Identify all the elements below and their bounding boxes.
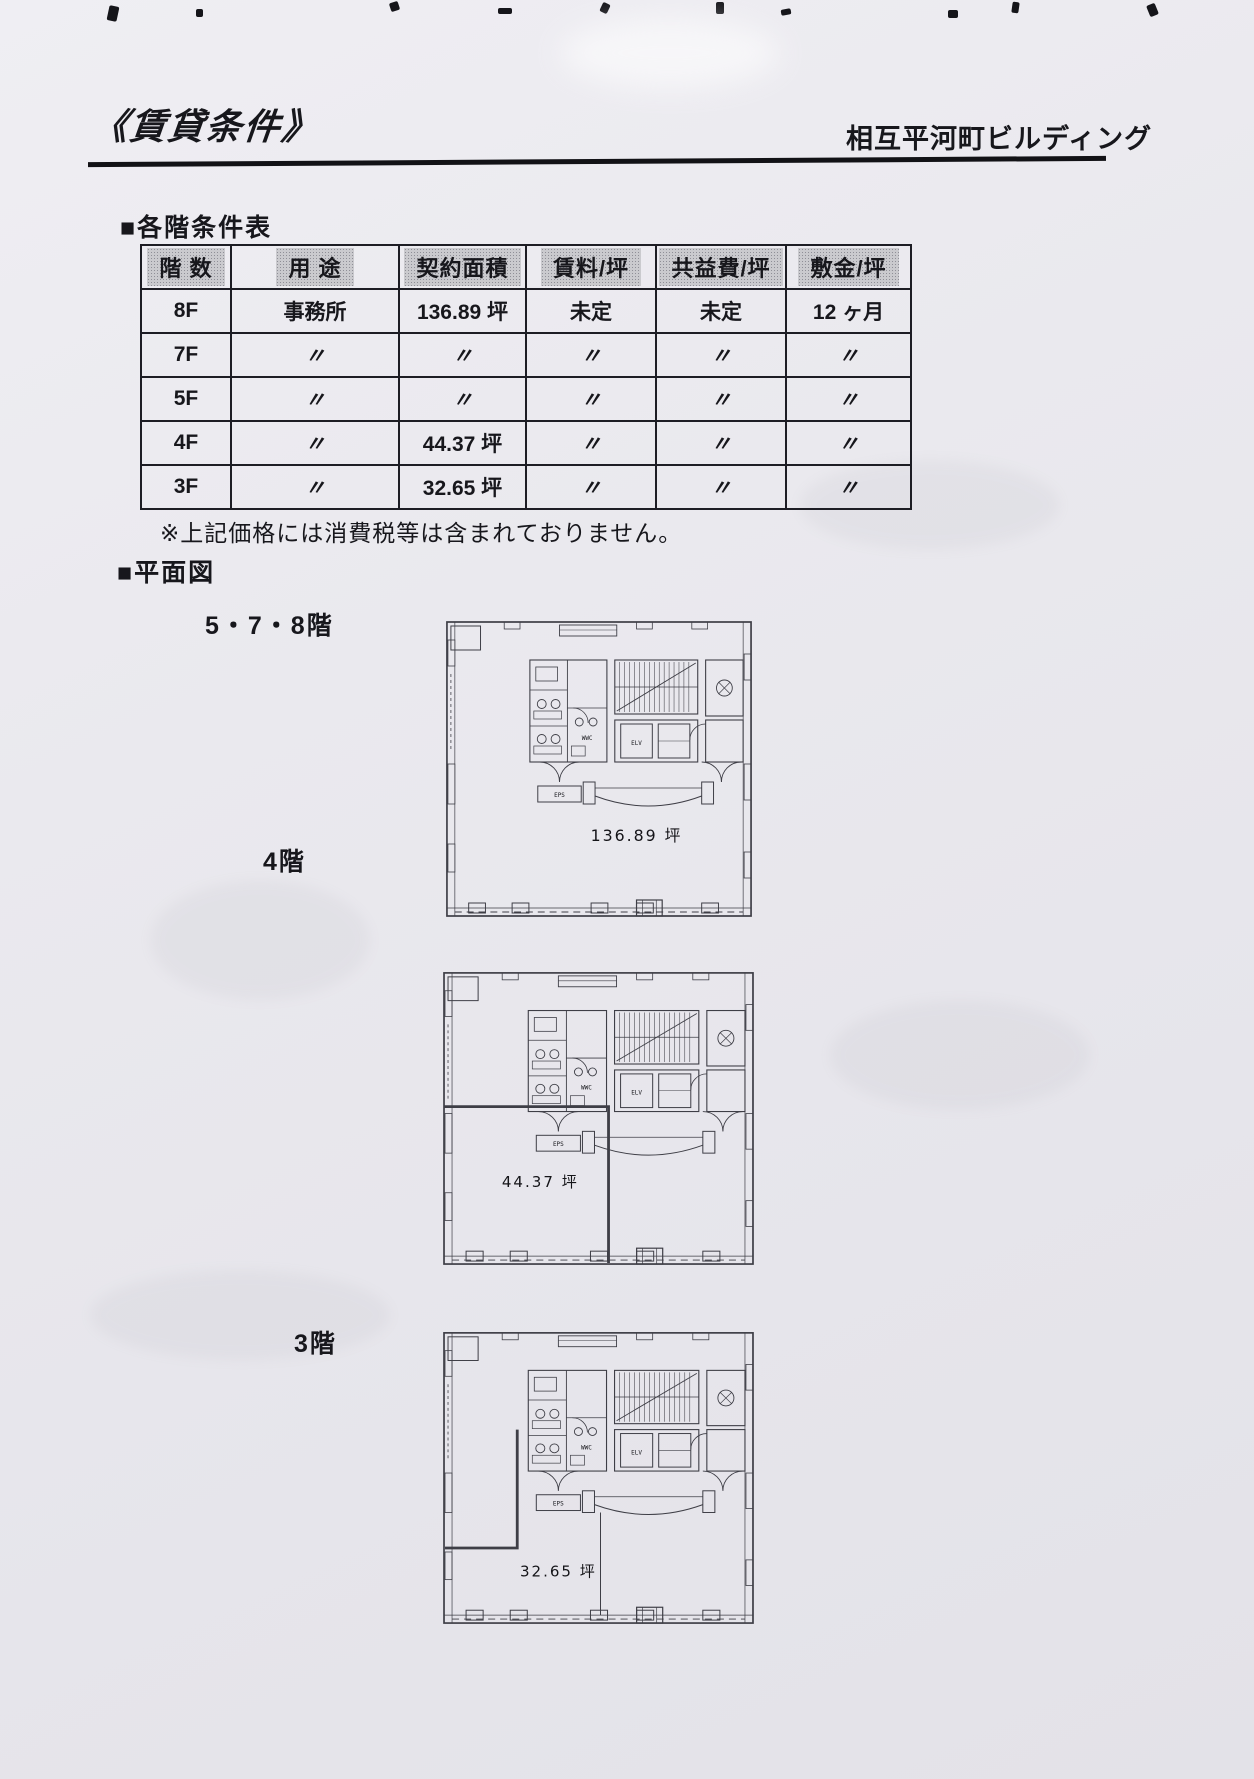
svg-text:ELV: ELV bbox=[631, 1449, 642, 1456]
conditions-table: 階 数 用 途 契約面積 賃料/坪 共益費/坪 敷金/坪 8F 事務所 136.… bbox=[140, 244, 912, 510]
table-header-row: 階 数 用 途 契約面積 賃料/坪 共益費/坪 敷金/坪 bbox=[141, 245, 911, 289]
cell-rent: 〃 bbox=[526, 465, 656, 509]
cell-floor: 7F bbox=[141, 333, 231, 377]
cell-area: 136.89 坪 bbox=[399, 289, 526, 333]
cell-floor: 8F bbox=[141, 289, 231, 333]
cell-use: 〃 bbox=[231, 377, 399, 421]
svg-text:EPS: EPS bbox=[553, 1501, 564, 1508]
cell-floor: 5F bbox=[141, 377, 231, 421]
conditions-section-heading: ■各階条件表 bbox=[120, 208, 272, 244]
scan-speck bbox=[107, 5, 120, 22]
table-row-3f: 3F 〃 32.65 坪 〃 〃 〃 bbox=[141, 465, 911, 509]
svg-text:EPS: EPS bbox=[553, 1141, 564, 1148]
cell-deposit: 〃 bbox=[786, 333, 911, 377]
cell-common-fee: 〃 bbox=[656, 465, 786, 509]
svg-text:32.65 坪: 32.65 坪 bbox=[520, 1563, 597, 1581]
cell-floor: 3F bbox=[141, 465, 231, 509]
cell-rent: 〃 bbox=[526, 377, 656, 421]
cell-rent: 〃 bbox=[526, 421, 656, 465]
tax-note: ※上記価格には消費税等は含まれておりません。 bbox=[160, 514, 682, 548]
cell-common-fee: 〃 bbox=[656, 421, 786, 465]
col-header-area: 契約面積 bbox=[399, 245, 526, 289]
col-header-rent: 賃料/坪 bbox=[526, 245, 656, 289]
scan-speck bbox=[389, 1, 400, 12]
scan-speck bbox=[599, 2, 610, 14]
col-header-label: 階 数 bbox=[147, 248, 224, 286]
cell-deposit: 〃 bbox=[786, 377, 911, 421]
cell-use: 〃 bbox=[231, 465, 399, 509]
scan-speck bbox=[781, 8, 792, 16]
cell-deposit: 12 ヶ月 bbox=[786, 289, 911, 333]
col-header-common-fee: 共益費/坪 bbox=[656, 245, 786, 289]
scanned-rental-conditions-page: 《賃貸条件》 相互平河町ビルディング ■各階条件表 階 数 用 途 契約面積 賃… bbox=[0, 0, 1254, 1779]
cell-area: 〃 bbox=[399, 333, 526, 377]
scan-speck bbox=[948, 10, 958, 18]
svg-text:44.37 坪: 44.37 坪 bbox=[502, 1173, 579, 1191]
header-rule bbox=[88, 156, 1106, 167]
svg-text:WWC: WWC bbox=[581, 1085, 592, 1092]
floor-plan-4F: WWCELVEPS44.37 坪 bbox=[440, 963, 757, 1268]
cell-use: 事務所 bbox=[231, 289, 399, 333]
plan-label-3F: 3階 bbox=[294, 1324, 337, 1360]
cell-area: 〃 bbox=[399, 377, 526, 421]
table-row-7f: 7F 〃 〃 〃 〃 〃 bbox=[141, 333, 911, 377]
col-header-deposit: 敷金/坪 bbox=[786, 245, 911, 289]
plan-label-5-7-8F: 5・7・8階 bbox=[205, 606, 334, 642]
col-header-label: 賃料/坪 bbox=[541, 248, 641, 286]
cell-area: 44.37 坪 bbox=[399, 421, 526, 465]
svg-text:WWC: WWC bbox=[582, 735, 593, 742]
page-title: 《賃貸条件》 bbox=[89, 98, 322, 150]
cell-use: 〃 bbox=[231, 333, 399, 377]
col-header-floor: 階 数 bbox=[141, 245, 231, 289]
table-row-4f: 4F 〃 44.37 坪 〃 〃 〃 bbox=[141, 421, 911, 465]
scan-speck bbox=[498, 8, 512, 14]
col-header-use: 用 途 bbox=[231, 245, 399, 289]
floor-plan-3F: WWCELVEPS32.65 坪 bbox=[440, 1323, 757, 1627]
svg-text:ELV: ELV bbox=[631, 740, 642, 747]
cell-rent: 〃 bbox=[526, 333, 656, 377]
cell-deposit: 〃 bbox=[786, 465, 911, 509]
col-header-label: 共益費/坪 bbox=[659, 248, 782, 286]
scan-smudge bbox=[90, 1270, 390, 1360]
scan-speck bbox=[1011, 2, 1019, 14]
cell-area: 32.65 坪 bbox=[399, 465, 526, 509]
building-name: 相互平河町ビルディング bbox=[846, 117, 1152, 156]
col-header-label: 敷金/坪 bbox=[798, 248, 898, 286]
scan-speck bbox=[716, 2, 724, 14]
svg-text:136.89 坪: 136.89 坪 bbox=[591, 826, 683, 845]
floor-plan-5-7-8F: WWCELVEPS136.89 坪 bbox=[443, 612, 755, 920]
table-row-8f: 8F 事務所 136.89 坪 未定 未定 12 ヶ月 bbox=[141, 289, 911, 333]
plan-label-4F: 4階 bbox=[263, 842, 306, 878]
scan-smudge bbox=[150, 880, 370, 1000]
cell-common-fee: 〃 bbox=[656, 377, 786, 421]
svg-text:EPS: EPS bbox=[554, 792, 565, 799]
scan-smudge bbox=[830, 1000, 1090, 1110]
svg-text:ELV: ELV bbox=[631, 1090, 642, 1097]
cell-common-fee: 未定 bbox=[656, 289, 786, 333]
scan-speck bbox=[1146, 3, 1159, 17]
cell-deposit: 〃 bbox=[786, 421, 911, 465]
floorplan-section-heading: ■平面図 bbox=[117, 553, 215, 589]
col-header-label: 用 途 bbox=[276, 248, 353, 286]
cell-use: 〃 bbox=[231, 421, 399, 465]
scan-speck bbox=[196, 9, 203, 17]
cell-rent: 未定 bbox=[526, 289, 656, 333]
svg-text:WWC: WWC bbox=[581, 1444, 592, 1451]
col-header-label: 契約面積 bbox=[404, 248, 520, 286]
cell-common-fee: 〃 bbox=[656, 333, 786, 377]
cell-floor: 4F bbox=[141, 421, 231, 465]
scan-bright-spot bbox=[560, 18, 780, 88]
table-row-5f: 5F 〃 〃 〃 〃 〃 bbox=[141, 377, 911, 421]
